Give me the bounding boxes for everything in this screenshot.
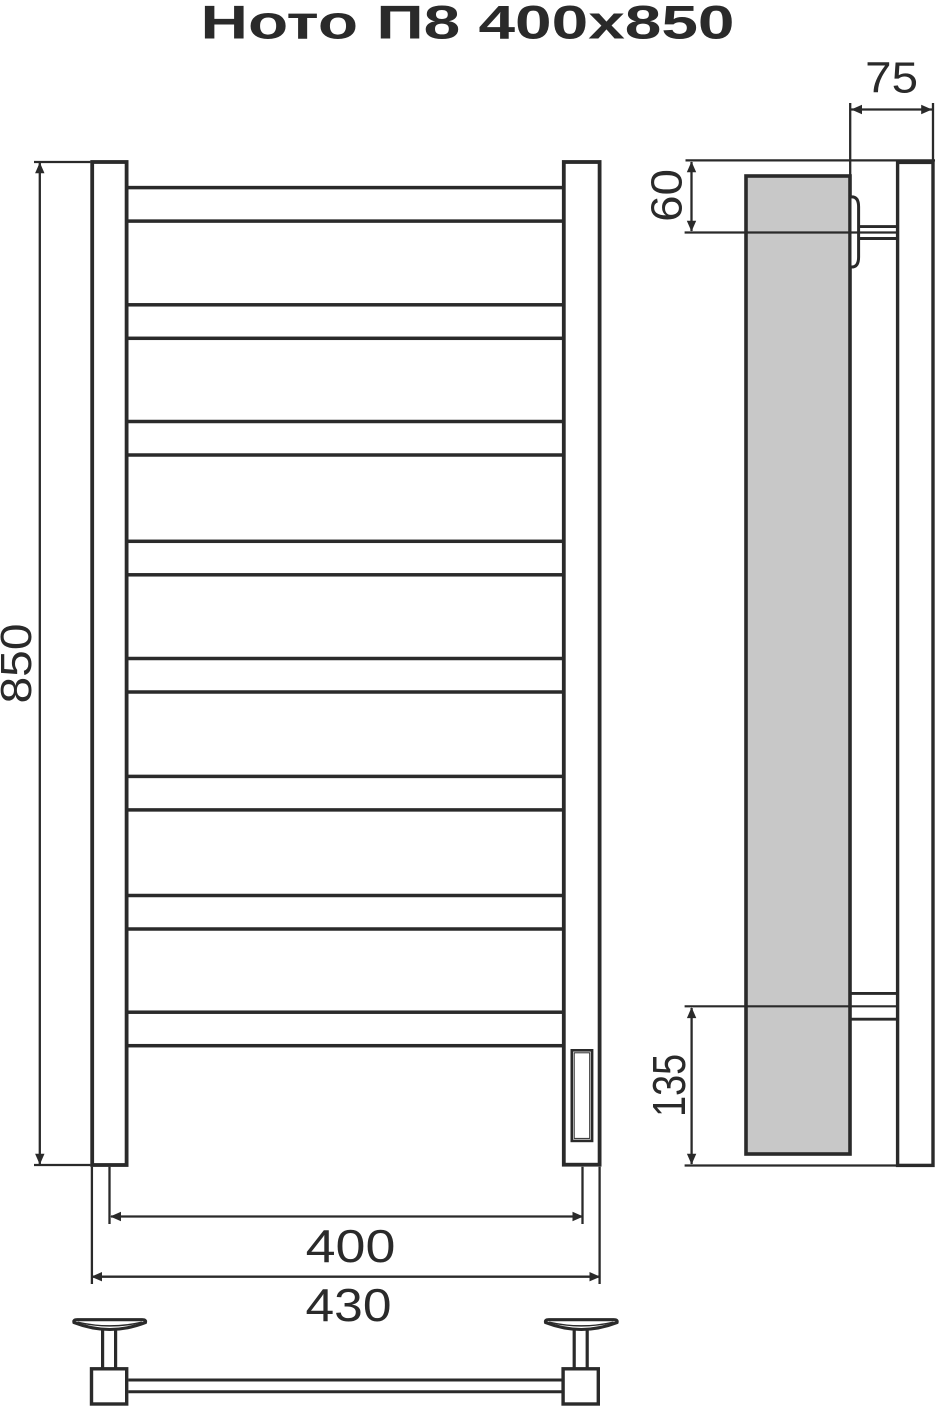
svg-text:400: 400 [306,1221,396,1272]
svg-text:75: 75 [865,53,918,102]
svg-text:Ното П8 400х850: Ното П8 400х850 [200,0,734,49]
svg-text:430: 430 [306,1280,392,1331]
svg-text:135: 135 [643,1054,694,1117]
svg-text:60: 60 [642,169,691,222]
svg-text:850: 850 [0,623,40,703]
